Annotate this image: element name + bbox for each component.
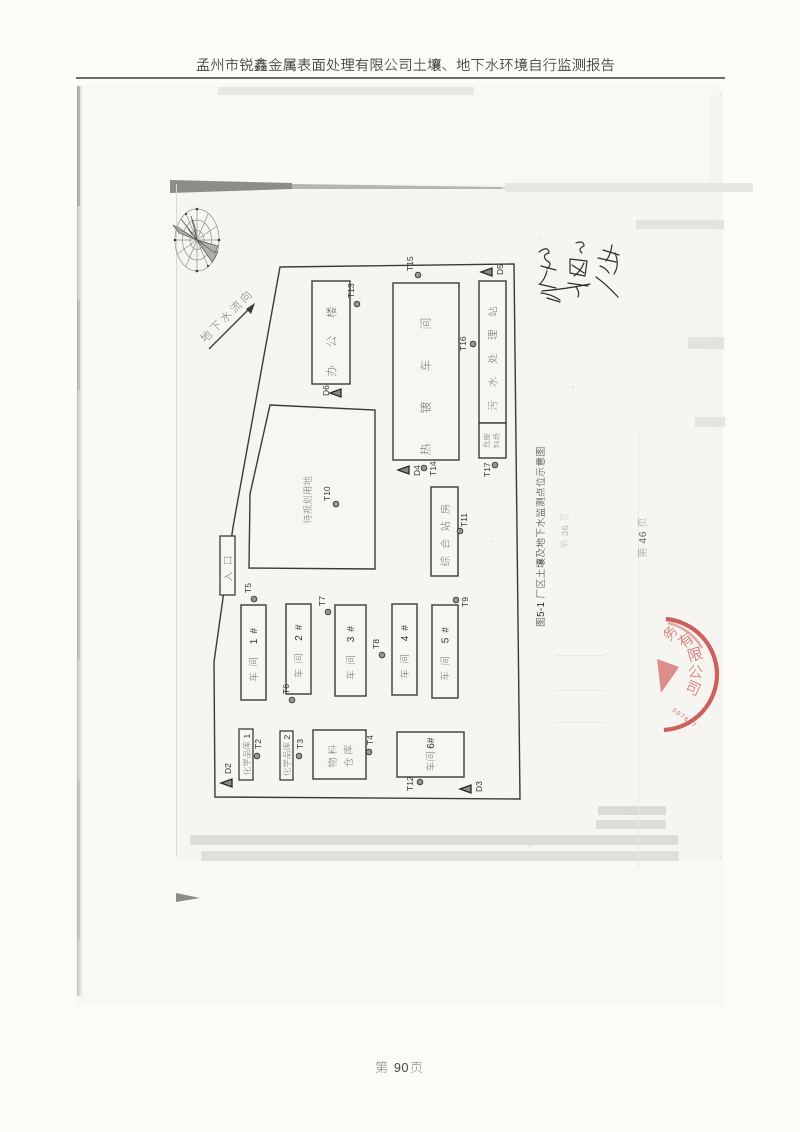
svg-text:3#: 3# — [346, 621, 357, 642]
svg-text:T7: T7 — [317, 596, 327, 606]
svg-text:5#: 5# — [441, 622, 452, 643]
svg-text:D5: D5 — [495, 264, 505, 275]
svg-text:4#: 4# — [400, 620, 411, 641]
svg-text:T4: T4 — [365, 735, 375, 745]
svg-text:1#: 1# — [249, 623, 260, 644]
svg-text:T12: T12 — [405, 776, 415, 791]
svg-text:D2: D2 — [223, 763, 233, 774]
svg-text:D3: D3 — [474, 781, 484, 792]
svg-text:D6: D6 — [321, 385, 331, 396]
svg-text:T13: T13 — [346, 283, 356, 298]
svg-text:T5: T5 — [243, 583, 253, 593]
svg-text:90: 90 — [394, 1061, 409, 1075]
svg-text:2#: 2# — [294, 620, 305, 641]
svg-text:5-1: 5-1 — [536, 602, 547, 617]
svg-text:T8: T8 — [371, 639, 381, 649]
svg-text:T3: T3 — [295, 739, 305, 749]
svg-text:T11: T11 — [459, 513, 469, 527]
svg-text:T10: T10 — [322, 486, 332, 501]
svg-text:T9: T9 — [460, 597, 470, 607]
svg-text:T6: T6 — [281, 684, 291, 694]
svg-text:T2: T2 — [253, 739, 263, 749]
svg-text:D4: D4 — [412, 465, 422, 476]
svg-text:T17: T17 — [482, 462, 492, 477]
svg-text:6#: 6# — [426, 737, 437, 749]
svg-text:2: 2 — [282, 735, 292, 740]
svg-text:T16: T16 — [458, 336, 468, 351]
svg-text:T14: T14 — [428, 461, 438, 476]
svg-text:T15: T15 — [405, 256, 415, 271]
svg-text:1: 1 — [242, 734, 252, 739]
